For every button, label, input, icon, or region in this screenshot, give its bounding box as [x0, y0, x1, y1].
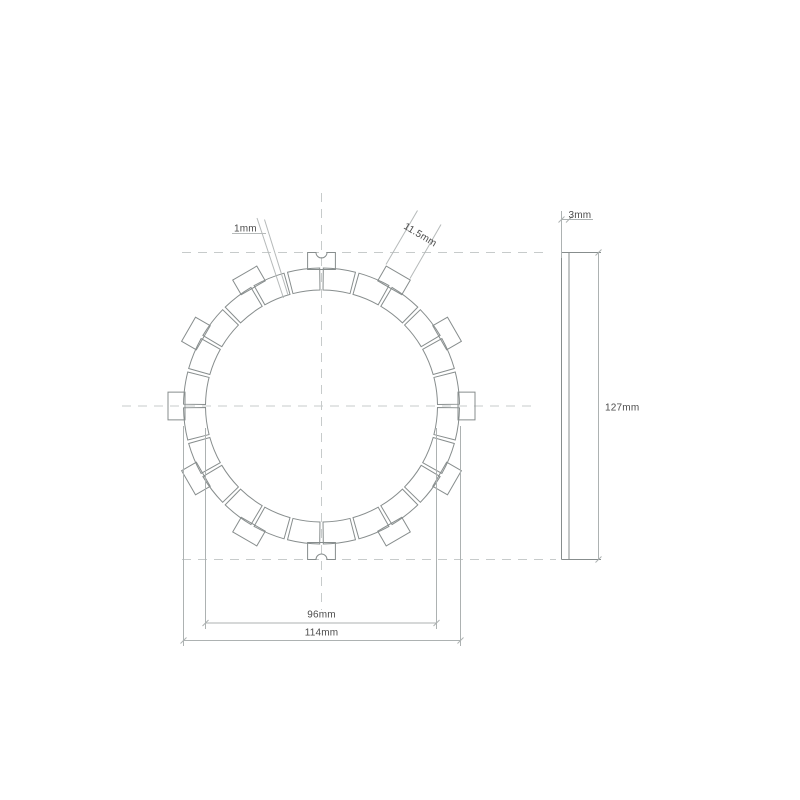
drive-tab [233, 266, 266, 295]
groove-width-label: 1mm [234, 224, 257, 235]
drive-tab [182, 317, 211, 350]
friction-pad [288, 518, 320, 544]
drive-tab [378, 517, 411, 546]
drive-tab [233, 517, 266, 546]
drive-tab [433, 317, 462, 350]
clutch-plate-technical-drawing: 1mm 11.5mm 3mm 127mm 96mm 114mm [0, 0, 800, 800]
friction-pad [189, 437, 221, 473]
friction-pad [184, 372, 210, 404]
drawing-sheet: 1mm 11.5mm 3mm 127mm 96mm 114mm [0, 0, 800, 800]
plate-thickness-label: 3mm [569, 210, 592, 221]
centerlines-group [122, 193, 556, 610]
friction-inner-diameter-label: 96mm [307, 610, 336, 621]
friction-pad [434, 372, 460, 404]
drive-tab [378, 266, 411, 295]
friction-pad [434, 408, 460, 440]
dimensions-group [181, 211, 602, 647]
drive-tab [433, 462, 462, 495]
friction-pad [323, 518, 355, 544]
friction-pad [288, 268, 320, 294]
overall-diameter-label: 127mm [605, 403, 639, 414]
friction-pad [353, 273, 389, 305]
friction-pad [189, 339, 221, 375]
friction-pad [254, 507, 290, 539]
friction-pad [353, 507, 389, 539]
friction-pad [423, 339, 455, 375]
side-view [562, 253, 602, 560]
leader-line-11.5mm [386, 211, 418, 265]
friction-pad [254, 273, 290, 305]
leader-line-1mm [265, 220, 289, 296]
friction-outer-diameter-label: 114mm [305, 628, 339, 639]
friction-pad [323, 268, 355, 294]
tab-width-label: 11.5mm [401, 221, 438, 249]
friction-pad [423, 437, 455, 473]
leader-line-1mm [257, 218, 284, 298]
